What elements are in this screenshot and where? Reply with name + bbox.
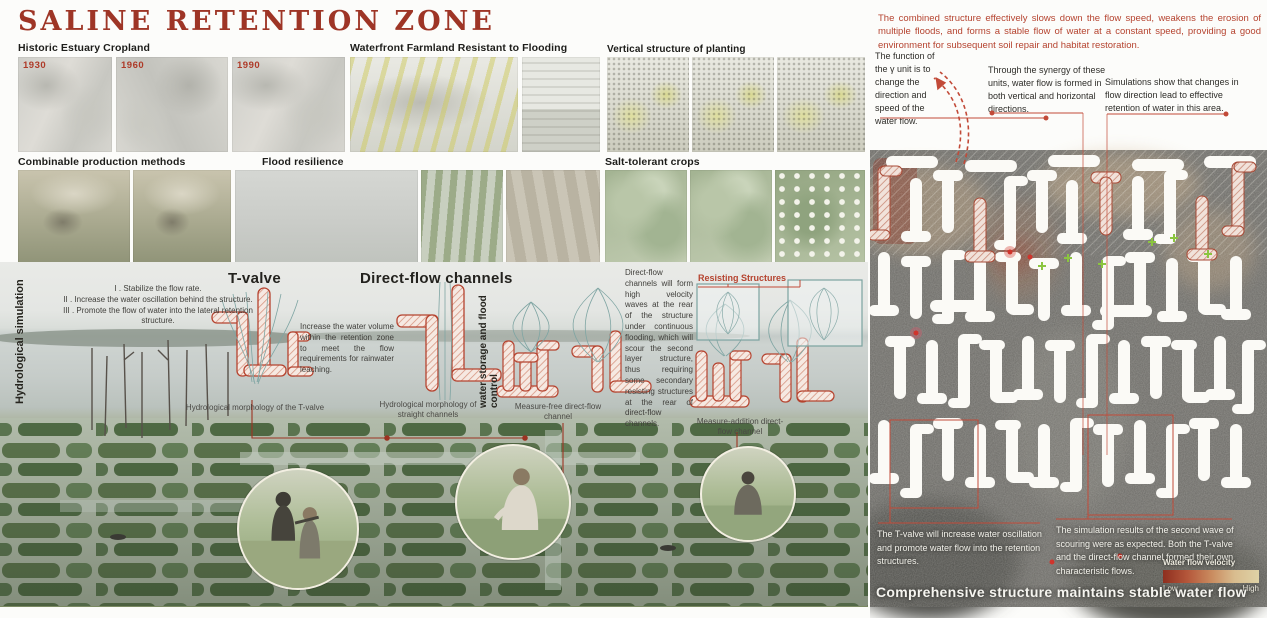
label-vertical-planting: Vertical structure of planting <box>607 44 746 55</box>
photo-waterfront-bridge <box>522 57 600 152</box>
poster-board: SALINE RETENTION ZONE Historic Estuary C… <box>0 0 1267 618</box>
photo-flood-1 <box>235 170 418 265</box>
measure-free-caption: Measure-free direct-flow channel <box>512 402 604 422</box>
photo-historic-1990: 1990 <box>232 57 345 152</box>
annotation-simulations: Simulations show that changes in flow di… <box>1105 76 1239 115</box>
t-valve-heading: T-valve <box>228 270 281 287</box>
label-combinable: Combinable production methods <box>18 156 185 168</box>
label-salt-tolerant: Salt-tolerant crops <box>605 156 700 168</box>
measure-addition-caption: Measure-addition direct-flow channel <box>692 417 788 437</box>
map-footer-title: Comprehensive structure maintains stable… <box>876 584 1256 600</box>
harvester-figure <box>702 448 794 540</box>
photo-waterfront-plan <box>350 57 518 152</box>
side-label-hydrological-simulation: Hydrological simulation <box>14 266 26 404</box>
page-title: SALINE RETENTION ZONE <box>18 6 495 37</box>
photo-flood-2 <box>421 170 503 265</box>
inset-farmers <box>237 468 359 590</box>
photo-combinable-1 <box>18 170 130 265</box>
annotation-gamma-unit: The function of the γ unit is to change … <box>875 50 939 128</box>
planter-figure <box>457 446 569 558</box>
photo-salt-1 <box>605 170 687 265</box>
photo-historic-1960: 1960 <box>116 57 228 152</box>
inset-planter <box>455 444 571 560</box>
t-valve-caption: Hydrological morphology of the T-valve <box>180 403 330 413</box>
t-valve-note-2: II . Increase the water oscillation behi… <box>52 295 264 306</box>
map-note-tvalve: The T-valve will increase water oscillat… <box>877 528 1045 569</box>
inset-harvester <box>700 446 796 542</box>
label-historic: Historic Estuary Cropland <box>18 42 150 54</box>
photo-planting-3 <box>777 57 865 152</box>
photo-salt-3 <box>775 170 865 265</box>
label-flood-resilience: Flood resilience <box>262 156 344 168</box>
resisting-structures-label: Resisting Structures <box>698 273 786 283</box>
legend-title: Water flow velocity <box>1163 558 1259 567</box>
photo-planting-2 <box>692 57 774 152</box>
photo-salt-2 <box>690 170 772 265</box>
straight-channel-caption: Hydrological morphology of straight chan… <box>372 400 484 420</box>
green-plus-markers <box>1038 234 1212 270</box>
year-label: 1930 <box>23 60 46 71</box>
map-red-structures <box>870 162 1256 262</box>
year-label: 1960 <box>121 60 144 71</box>
photo-historic-1930: 1930 <box>18 57 112 152</box>
photo-combinable-2 <box>133 170 231 265</box>
red-dot-markers <box>910 246 1123 565</box>
annotation-synergy: Through the synergy of these units, wate… <box>988 64 1120 116</box>
year-label: 1990 <box>237 60 260 71</box>
t-valve-note-3: III . Promote the flow of water into the… <box>52 306 264 328</box>
right-intro-text: The combined structure effectively slows… <box>878 12 1261 52</box>
scour-note: Direct-flow channels will form high velo… <box>625 268 693 430</box>
photo-flood-3 <box>506 170 600 265</box>
map-white-structures <box>870 155 1266 498</box>
t-valve-notes: I . Stabilize the flow rate. II . Increa… <box>52 284 264 327</box>
map-callouts <box>878 72 1232 523</box>
photo-planting-1 <box>607 57 689 152</box>
legend-gradient-bar <box>1163 570 1259 583</box>
farmers-figures <box>239 470 357 588</box>
side-label-water-storage: water storage and flood control <box>478 268 500 408</box>
direct-flow-note: Increase the water volume within the ret… <box>300 322 394 376</box>
label-waterfront: Waterfront Farmland Resistant to Floodin… <box>350 42 567 54</box>
